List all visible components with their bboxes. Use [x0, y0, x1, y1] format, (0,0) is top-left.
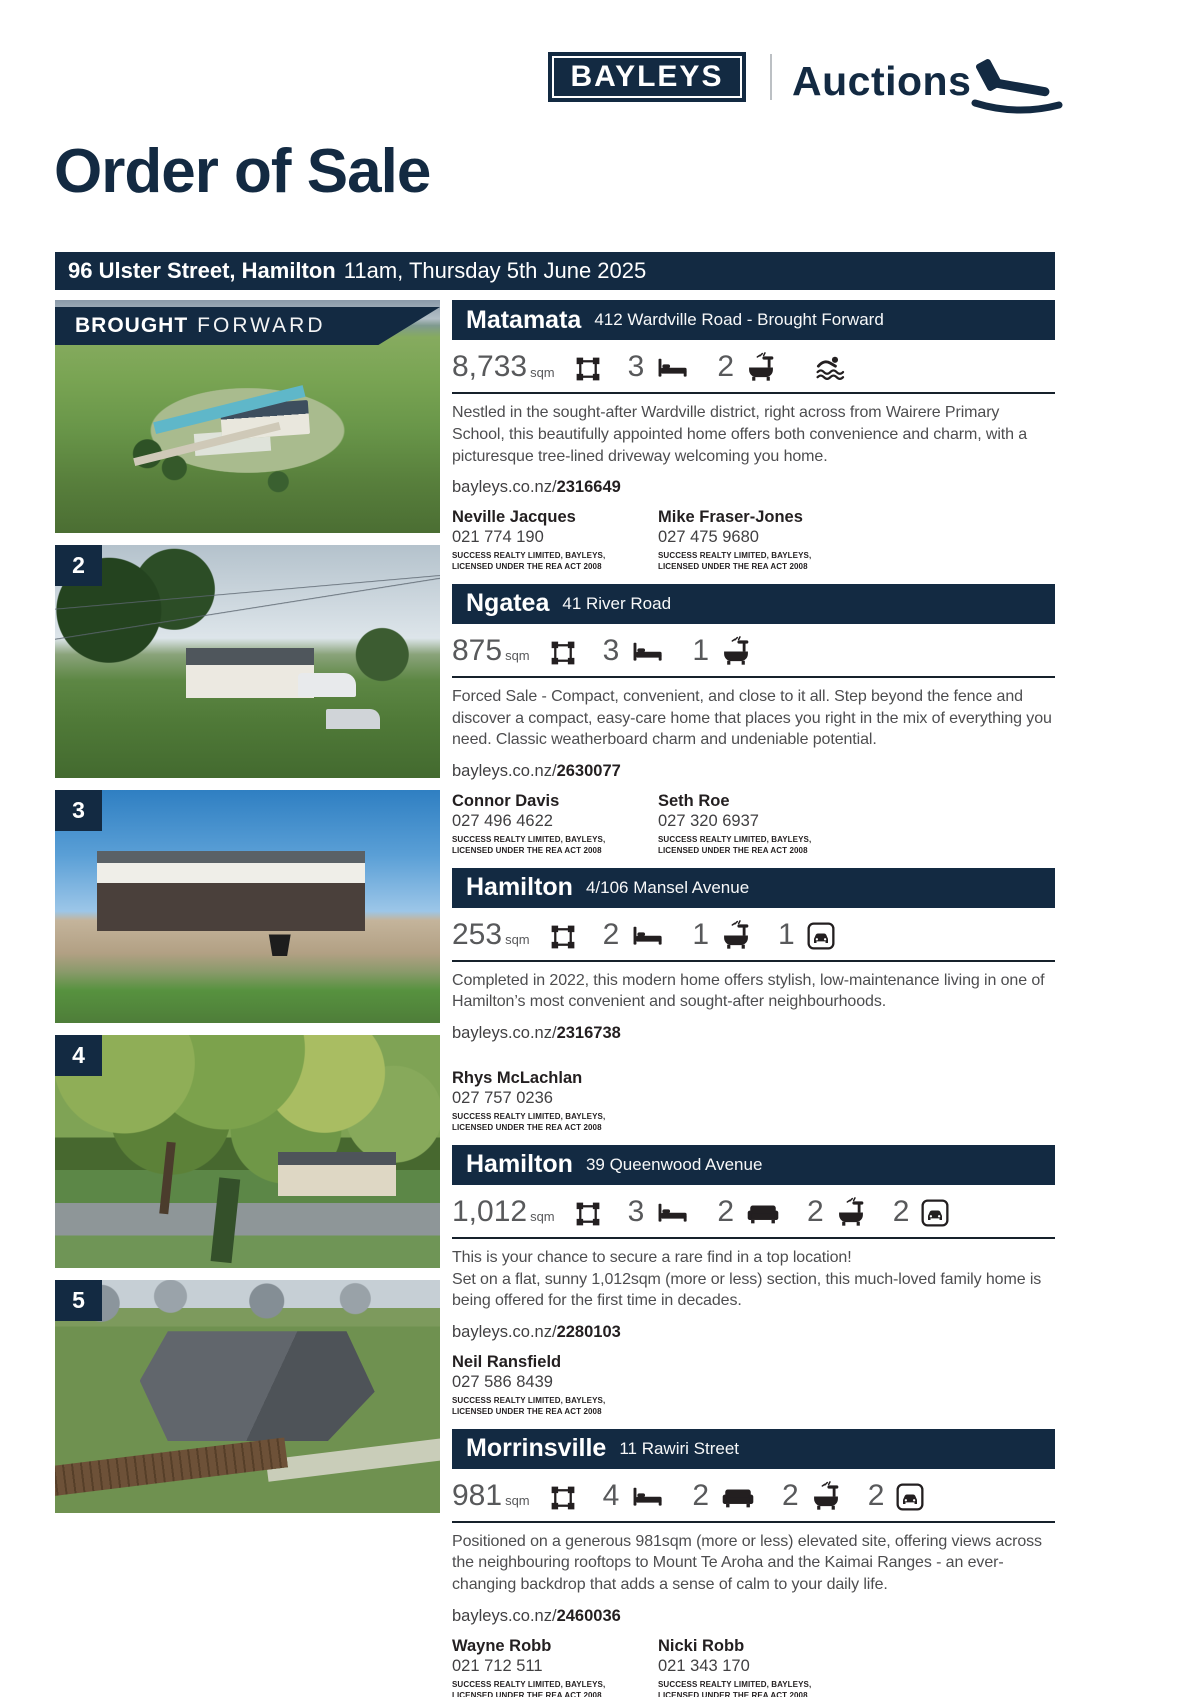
auction-details-bar: 96 Ulster Street, Hamilton 11am, Thursda…	[55, 252, 1055, 290]
property-town: Hamilton	[466, 1150, 573, 1179]
property-address: 4/106 Mansel Avenue	[586, 878, 749, 898]
bed-icon	[631, 1485, 665, 1511]
stat-value: 2	[717, 1197, 734, 1227]
stat-pool	[803, 354, 849, 380]
property-photo-5: 5	[55, 1280, 440, 1513]
agent-name: Neil Ransfield	[452, 1353, 658, 1372]
agent-name: Nicki Robb	[658, 1637, 864, 1656]
property-listing-3: Hamilton 4/106 Mansel Avenue 253sqm211 C…	[452, 868, 1055, 1134]
land-icon	[575, 1201, 601, 1227]
property-stats: 8,733sqm32	[452, 350, 1055, 384]
property-description: Positioned on a generous 981sqm (more or…	[452, 1531, 1055, 1596]
stat-bed: 3	[628, 352, 691, 382]
agent-name: Seth Roe	[658, 792, 864, 811]
stat-value: 1	[692, 636, 709, 666]
car-icon	[807, 922, 835, 950]
lot-number-badge: 5	[55, 1280, 102, 1321]
bath-icon	[746, 352, 776, 382]
property-stats: 253sqm211	[452, 918, 1055, 952]
stat-unit: sqm	[505, 646, 530, 666]
stat-value: 1	[692, 920, 709, 950]
agent-card: Neville Jacques021 774 190SUCCESS REALTY…	[452, 508, 658, 573]
land-icon	[575, 356, 601, 382]
agent-name: Rhys McLachlan	[452, 1069, 658, 1088]
pool-icon	[815, 354, 849, 380]
lot-number-badge: 4	[55, 1035, 102, 1076]
stat-bed: 3	[603, 636, 666, 666]
details-column: Matamata 412 Wardville Road - Brought Fo…	[452, 300, 1055, 1697]
lot-number-badge: 3	[55, 790, 102, 831]
stat-land: 981sqm	[452, 1481, 576, 1511]
property-header: Hamilton 39 Queenwood Avenue	[452, 1145, 1055, 1185]
agent-phone: 027 496 4622	[452, 812, 658, 831]
property-stats: 1,012sqm3222	[452, 1195, 1055, 1229]
agent-phone: 027 757 0236	[452, 1089, 658, 1108]
agent-phone: 027 320 6937	[658, 812, 864, 831]
agent-card: Nicki Robb021 343 170SUCCESS REALTY LIMI…	[658, 1637, 864, 1697]
agent-name: Mike Fraser-Jones	[658, 508, 864, 527]
logo-divider	[770, 54, 772, 100]
agent-phone: 021 712 511	[452, 1657, 658, 1676]
agent-phone: 027 475 9680	[658, 528, 864, 547]
stat-bath: 1	[692, 636, 751, 666]
property-listing-1: Matamata 412 Wardville Road - Brought Fo…	[452, 300, 1055, 573]
stat-car: 1	[778, 920, 835, 950]
agents-row: Rhys McLachlan027 757 0236SUCCESS REALTY…	[452, 1069, 1055, 1134]
agent-license: SUCCESS REALTY LIMITED, BAYLEYS,LICENSED…	[658, 1680, 864, 1697]
link-prefix: bayleys.co.nz/	[452, 1024, 557, 1042]
stat-value: 2	[603, 920, 620, 950]
banner-bold-text: BROUGHT	[75, 314, 188, 338]
property-address: 11 Rawiri Street	[619, 1439, 739, 1459]
stat-bath: 2	[717, 352, 776, 382]
stat-bed: 4	[603, 1481, 666, 1511]
agent-phone: 027 586 8439	[452, 1373, 658, 1392]
agent-license: SUCCESS REALTY LIMITED, BAYLEYS,LICENSED…	[452, 1680, 658, 1697]
brought-forward-banner: BROUGHT FORWARD	[55, 307, 440, 345]
property-header: Morrinsville 11 Rawiri Street	[452, 1429, 1055, 1469]
property-description: Forced Sale - Compact, convenient, and c…	[452, 686, 1055, 751]
agent-name: Wayne Robb	[452, 1637, 658, 1656]
bath-icon	[721, 920, 751, 950]
property-address: 39 Queenwood Avenue	[586, 1155, 762, 1175]
stat-value: 1,012	[452, 1197, 527, 1227]
stat-unit: sqm	[530, 363, 555, 383]
page-title: Order of Sale	[54, 138, 430, 206]
link-id: 2280103	[557, 1323, 621, 1341]
stat-value: 3	[628, 1197, 645, 1227]
stat-car: 2	[893, 1197, 950, 1227]
stat-unit: sqm	[505, 930, 530, 950]
agent-license: SUCCESS REALTY LIMITED, BAYLEYS,LICENSED…	[452, 835, 658, 857]
stats-divider	[452, 1237, 1055, 1239]
property-town: Morrinsville	[466, 1434, 606, 1463]
bed-icon	[631, 640, 665, 666]
stat-bath: 2	[807, 1197, 866, 1227]
listing-link[interactable]: bayleys.co.nz/2316649	[452, 478, 1055, 497]
property-header: Hamilton 4/106 Mansel Avenue	[452, 868, 1055, 908]
stat-unit: sqm	[530, 1207, 555, 1227]
stat-land: 8,733sqm	[452, 352, 601, 382]
stat-sofa: 2	[692, 1481, 755, 1511]
link-prefix: bayleys.co.nz/	[452, 1323, 557, 1341]
stat-land: 875sqm	[452, 636, 576, 666]
sofa-icon	[721, 1485, 755, 1511]
stat-value: 8,733	[452, 352, 527, 382]
link-prefix: bayleys.co.nz/	[452, 478, 557, 496]
link-id: 2316649	[557, 478, 621, 496]
property-town: Ngatea	[466, 589, 549, 618]
property-listing-4: Hamilton 39 Queenwood Avenue 1,012sqm322…	[452, 1145, 1055, 1418]
land-icon	[550, 1485, 576, 1511]
stats-divider	[452, 392, 1055, 394]
stat-value: 2	[782, 1481, 799, 1511]
property-description: Nestled in the sought-after Wardville di…	[452, 402, 1055, 467]
stat-value: 2	[807, 1197, 824, 1227]
agent-license: SUCCESS REALTY LIMITED, BAYLEYS,LICENSED…	[452, 551, 658, 573]
agents-row: Wayne Robb021 712 511SUCCESS REALTY LIMI…	[452, 1637, 1055, 1697]
agent-license: SUCCESS REALTY LIMITED, BAYLEYS,LICENSED…	[658, 835, 864, 857]
auctions-label: Auctions	[792, 58, 971, 105]
stat-land: 253sqm	[452, 920, 576, 950]
property-address: 412 Wardville Road - Brought Forward	[594, 310, 883, 330]
stat-value: 2	[717, 352, 734, 382]
bath-icon	[811, 1481, 841, 1511]
bayleys-logo-text: BAYLEYS	[571, 60, 724, 94]
listing-link[interactable]: bayleys.co.nz/2630077	[452, 762, 1055, 781]
stat-bath: 1	[692, 920, 751, 950]
link-id: 2460036	[557, 1607, 621, 1625]
auction-time: 11am, Thursday 5th June 2025	[344, 258, 647, 284]
property-header: Matamata 412 Wardville Road - Brought Fo…	[452, 300, 1055, 340]
link-prefix: bayleys.co.nz/	[452, 1607, 557, 1625]
property-description: Completed in 2022, this modern home offe…	[452, 970, 1055, 1014]
listing-link[interactable]: bayleys.co.nz/2460036	[452, 1607, 1055, 1626]
agent-card: Mike Fraser-Jones027 475 9680SUCCESS REA…	[658, 508, 864, 573]
stat-bed: 2	[603, 920, 666, 950]
land-icon	[550, 640, 576, 666]
stat-bath: 2	[782, 1481, 841, 1511]
agent-name: Neville Jacques	[452, 508, 658, 527]
link-prefix: bayleys.co.nz/	[452, 762, 557, 780]
agent-phone: 021 774 190	[452, 528, 658, 547]
stat-value: 4	[603, 1481, 620, 1511]
property-listing-2: Ngatea 41 River Road 875sqm31 Forced Sal…	[452, 584, 1055, 857]
stat-value: 3	[603, 636, 620, 666]
property-stats: 875sqm31	[452, 634, 1055, 668]
stat-value: 1	[778, 920, 795, 950]
bed-icon	[656, 1201, 690, 1227]
stat-value: 875	[452, 636, 502, 666]
property-photo-3: 3	[55, 790, 440, 1023]
agent-name: Connor Davis	[452, 792, 658, 811]
auctions-brand: Auctions	[792, 48, 1063, 114]
order-of-sale-page: BAYLEYS Auctions Order of Sale 96 Ulster…	[0, 0, 1200, 1697]
stat-value: 3	[628, 352, 645, 382]
agent-phone: 021 343 170	[658, 1657, 864, 1676]
stat-sofa: 2	[717, 1197, 780, 1227]
sofa-icon	[746, 1201, 780, 1227]
stat-value: 253	[452, 920, 502, 950]
stat-land: 1,012sqm	[452, 1197, 601, 1227]
bath-icon	[836, 1197, 866, 1227]
listing-link[interactable]: bayleys.co.nz/2280103	[452, 1323, 1055, 1342]
agent-license: SUCCESS REALTY LIMITED, BAYLEYS,LICENSED…	[452, 1112, 658, 1134]
property-town: Matamata	[466, 306, 581, 335]
agent-card: Neil Ransfield027 586 8439SUCCESS REALTY…	[452, 1353, 658, 1418]
stat-value: 981	[452, 1481, 502, 1511]
listing-link[interactable]: bayleys.co.nz/2316738	[452, 1024, 1055, 1043]
agent-card: Connor Davis027 496 4622SUCCESS REALTY L…	[452, 792, 658, 857]
stat-unit: sqm	[505, 1491, 530, 1511]
car-icon	[896, 1483, 924, 1511]
property-address: 41 River Road	[562, 594, 671, 614]
stat-value: 2	[692, 1481, 709, 1511]
stat-value: 2	[893, 1197, 910, 1227]
property-photo-4: 4	[55, 1035, 440, 1268]
stats-divider	[452, 960, 1055, 962]
agents-row: Connor Davis027 496 4622SUCCESS REALTY L…	[452, 792, 1055, 857]
link-id: 2630077	[557, 762, 621, 780]
agents-row: Neil Ransfield027 586 8439SUCCESS REALTY…	[452, 1353, 1055, 1418]
agent-license: SUCCESS REALTY LIMITED, BAYLEYS,LICENSED…	[658, 551, 864, 573]
gavel-icon	[967, 56, 1063, 114]
lot-number-badge: 2	[55, 545, 102, 586]
bed-icon	[631, 924, 665, 950]
link-id: 2316738	[557, 1024, 621, 1042]
property-stats: 981sqm4222	[452, 1479, 1055, 1513]
agent-card: Seth Roe027 320 6937SUCCESS REALTY LIMIT…	[658, 792, 864, 857]
stats-divider	[452, 676, 1055, 678]
bed-icon	[656, 356, 690, 382]
agent-license: SUCCESS REALTY LIMITED, BAYLEYS,LICENSED…	[452, 1396, 658, 1418]
agent-card: Rhys McLachlan027 757 0236SUCCESS REALTY…	[452, 1069, 658, 1134]
car-icon	[921, 1199, 949, 1227]
stat-car: 2	[868, 1481, 925, 1511]
property-photo-2: 2	[55, 545, 440, 778]
stat-bed: 3	[628, 1197, 691, 1227]
agents-row: Neville Jacques021 774 190SUCCESS REALTY…	[452, 508, 1055, 573]
bath-icon	[721, 636, 751, 666]
stat-value: 2	[868, 1481, 885, 1511]
property-description: This is your chance to secure a rare fin…	[452, 1247, 1055, 1312]
land-icon	[550, 924, 576, 950]
bayleys-logo: BAYLEYS	[548, 52, 746, 102]
property-photo-1: BROUGHT FORWARD	[55, 300, 440, 533]
property-header: Ngatea 41 River Road	[452, 584, 1055, 624]
property-listing-5: Morrinsville 11 Rawiri Street 981sqm4222…	[452, 1429, 1055, 1697]
banner-light-text: FORWARD	[197, 314, 325, 338]
agent-card: Wayne Robb021 712 511SUCCESS REALTY LIMI…	[452, 1637, 658, 1697]
property-town: Hamilton	[466, 873, 573, 902]
auction-venue: 96 Ulster Street, Hamilton	[68, 258, 336, 284]
stats-divider	[452, 1521, 1055, 1523]
